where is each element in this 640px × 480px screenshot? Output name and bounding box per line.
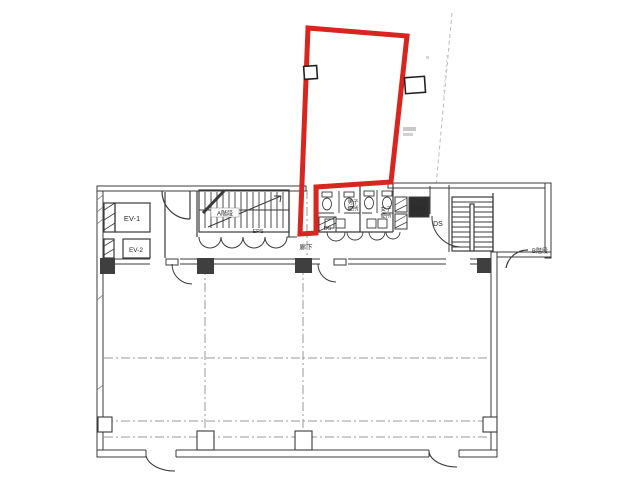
wash-basins [325,219,387,228]
ev2-label: EV-2 [129,247,143,254]
womens-toilet-label: 女子 便所 [380,205,392,220]
ev1-label: EV-1 [124,214,140,223]
mens-toilet-label: 男子 便所 [347,199,359,213]
column [483,417,497,432]
corridor-wall [100,258,491,284]
door-swing [327,232,400,241]
svg-text:便所: 便所 [347,205,359,213]
illegible-faint-mark [426,56,429,59]
stair-b-label: B階段 [532,247,548,255]
corridor-label: 廊下 [300,242,314,251]
stair-a-label: A階段 [217,210,233,218]
column [295,431,312,450]
neighbour-boundary [403,13,452,186]
eps-label: EPS [252,229,263,235]
illegible-faint-mark [403,133,413,136]
svg-text:女子: 女子 [380,205,392,213]
column [304,66,318,80]
door-swing [162,191,190,219]
elevator-bank [104,191,190,258]
door-swing [146,456,175,471]
service-shafts [395,185,461,252]
svg-text:便所: 便所 [380,212,392,220]
kitchenette-label: 湯沸室 [412,205,427,212]
floor-plan-svg: EV-1 EV-2 A階段 EPS DS [0,0,640,480]
column [197,431,214,450]
door-swing [318,264,336,282]
illegible-faint-mark [403,127,416,131]
column [98,417,112,432]
svg-text:男子: 男子 [347,199,359,206]
column [404,76,425,93]
ds-right-label: DS [433,221,443,228]
floor-plan-image: EV-1 EV-2 A階段 EPS DS [0,0,640,480]
staircase-a [197,190,297,248]
grid-lines [104,190,490,449]
door-swing [172,264,192,284]
office-area [98,417,497,471]
